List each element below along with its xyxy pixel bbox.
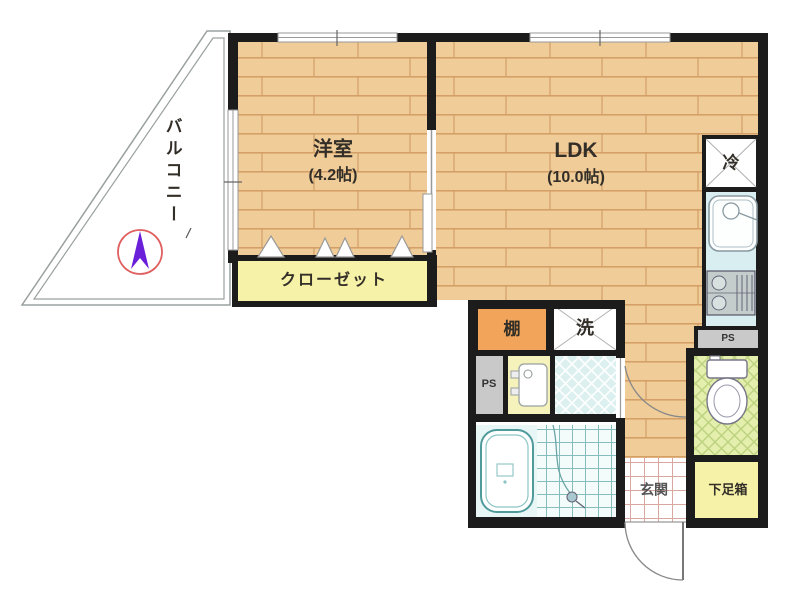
stove-icon [707,271,755,315]
washroom-floor [555,356,616,418]
entrance-label: 玄関 [640,481,668,499]
fridge-label: 冷 [723,152,740,173]
balcony-label: バルコニー [161,117,182,227]
floor-plan: バルコニー 洋室 (4.2帖) LDK (10.0帖) クローゼット 棚 洗 冷… [0,0,800,594]
western-room-size: (4.2帖) [309,166,358,186]
front-door [625,522,686,580]
shelf-label: 棚 [504,318,521,339]
floor-plan-drawing [0,0,800,594]
ldk-label: LDK [554,138,597,164]
kitchen-sink-icon [709,196,757,251]
shoe-cabinet-label: 下足箱 [708,482,747,498]
pipe-space-kitchen-label: PS [721,333,734,346]
bathtub-icon [481,430,533,512]
hallway-floor [620,348,686,458]
ldk-size: (10.0帖) [547,168,605,188]
pipe-space-left-label: PS [482,378,497,392]
closet-label: クローゼット [280,271,388,291]
toilet-icon [707,356,747,424]
bathroom-tile-floor [537,425,616,517]
western-room-label: 洋室 [313,138,353,163]
washer-label: 洗 [576,317,594,340]
